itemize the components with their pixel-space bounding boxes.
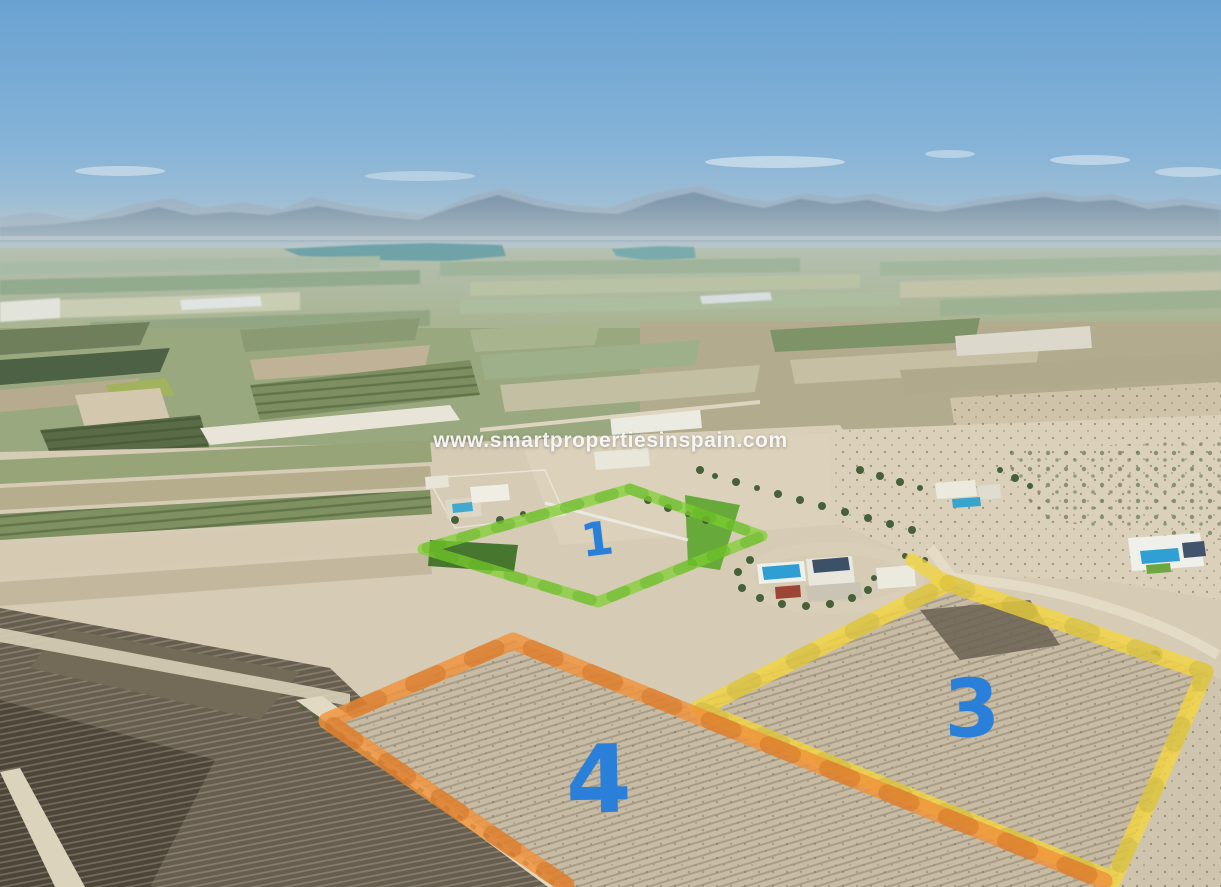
plot-4-number: 4 <box>565 733 632 828</box>
watermark: www.smartpropertiesinspain.com <box>433 429 787 453</box>
plot-3-number: 3 <box>943 668 1001 750</box>
distant-town-strip <box>0 236 1221 240</box>
plot-1-number: 1 <box>578 514 615 564</box>
aerial-photo-scene: www.smartpropertiesinspain.com 1 3 4 <box>0 0 1221 887</box>
